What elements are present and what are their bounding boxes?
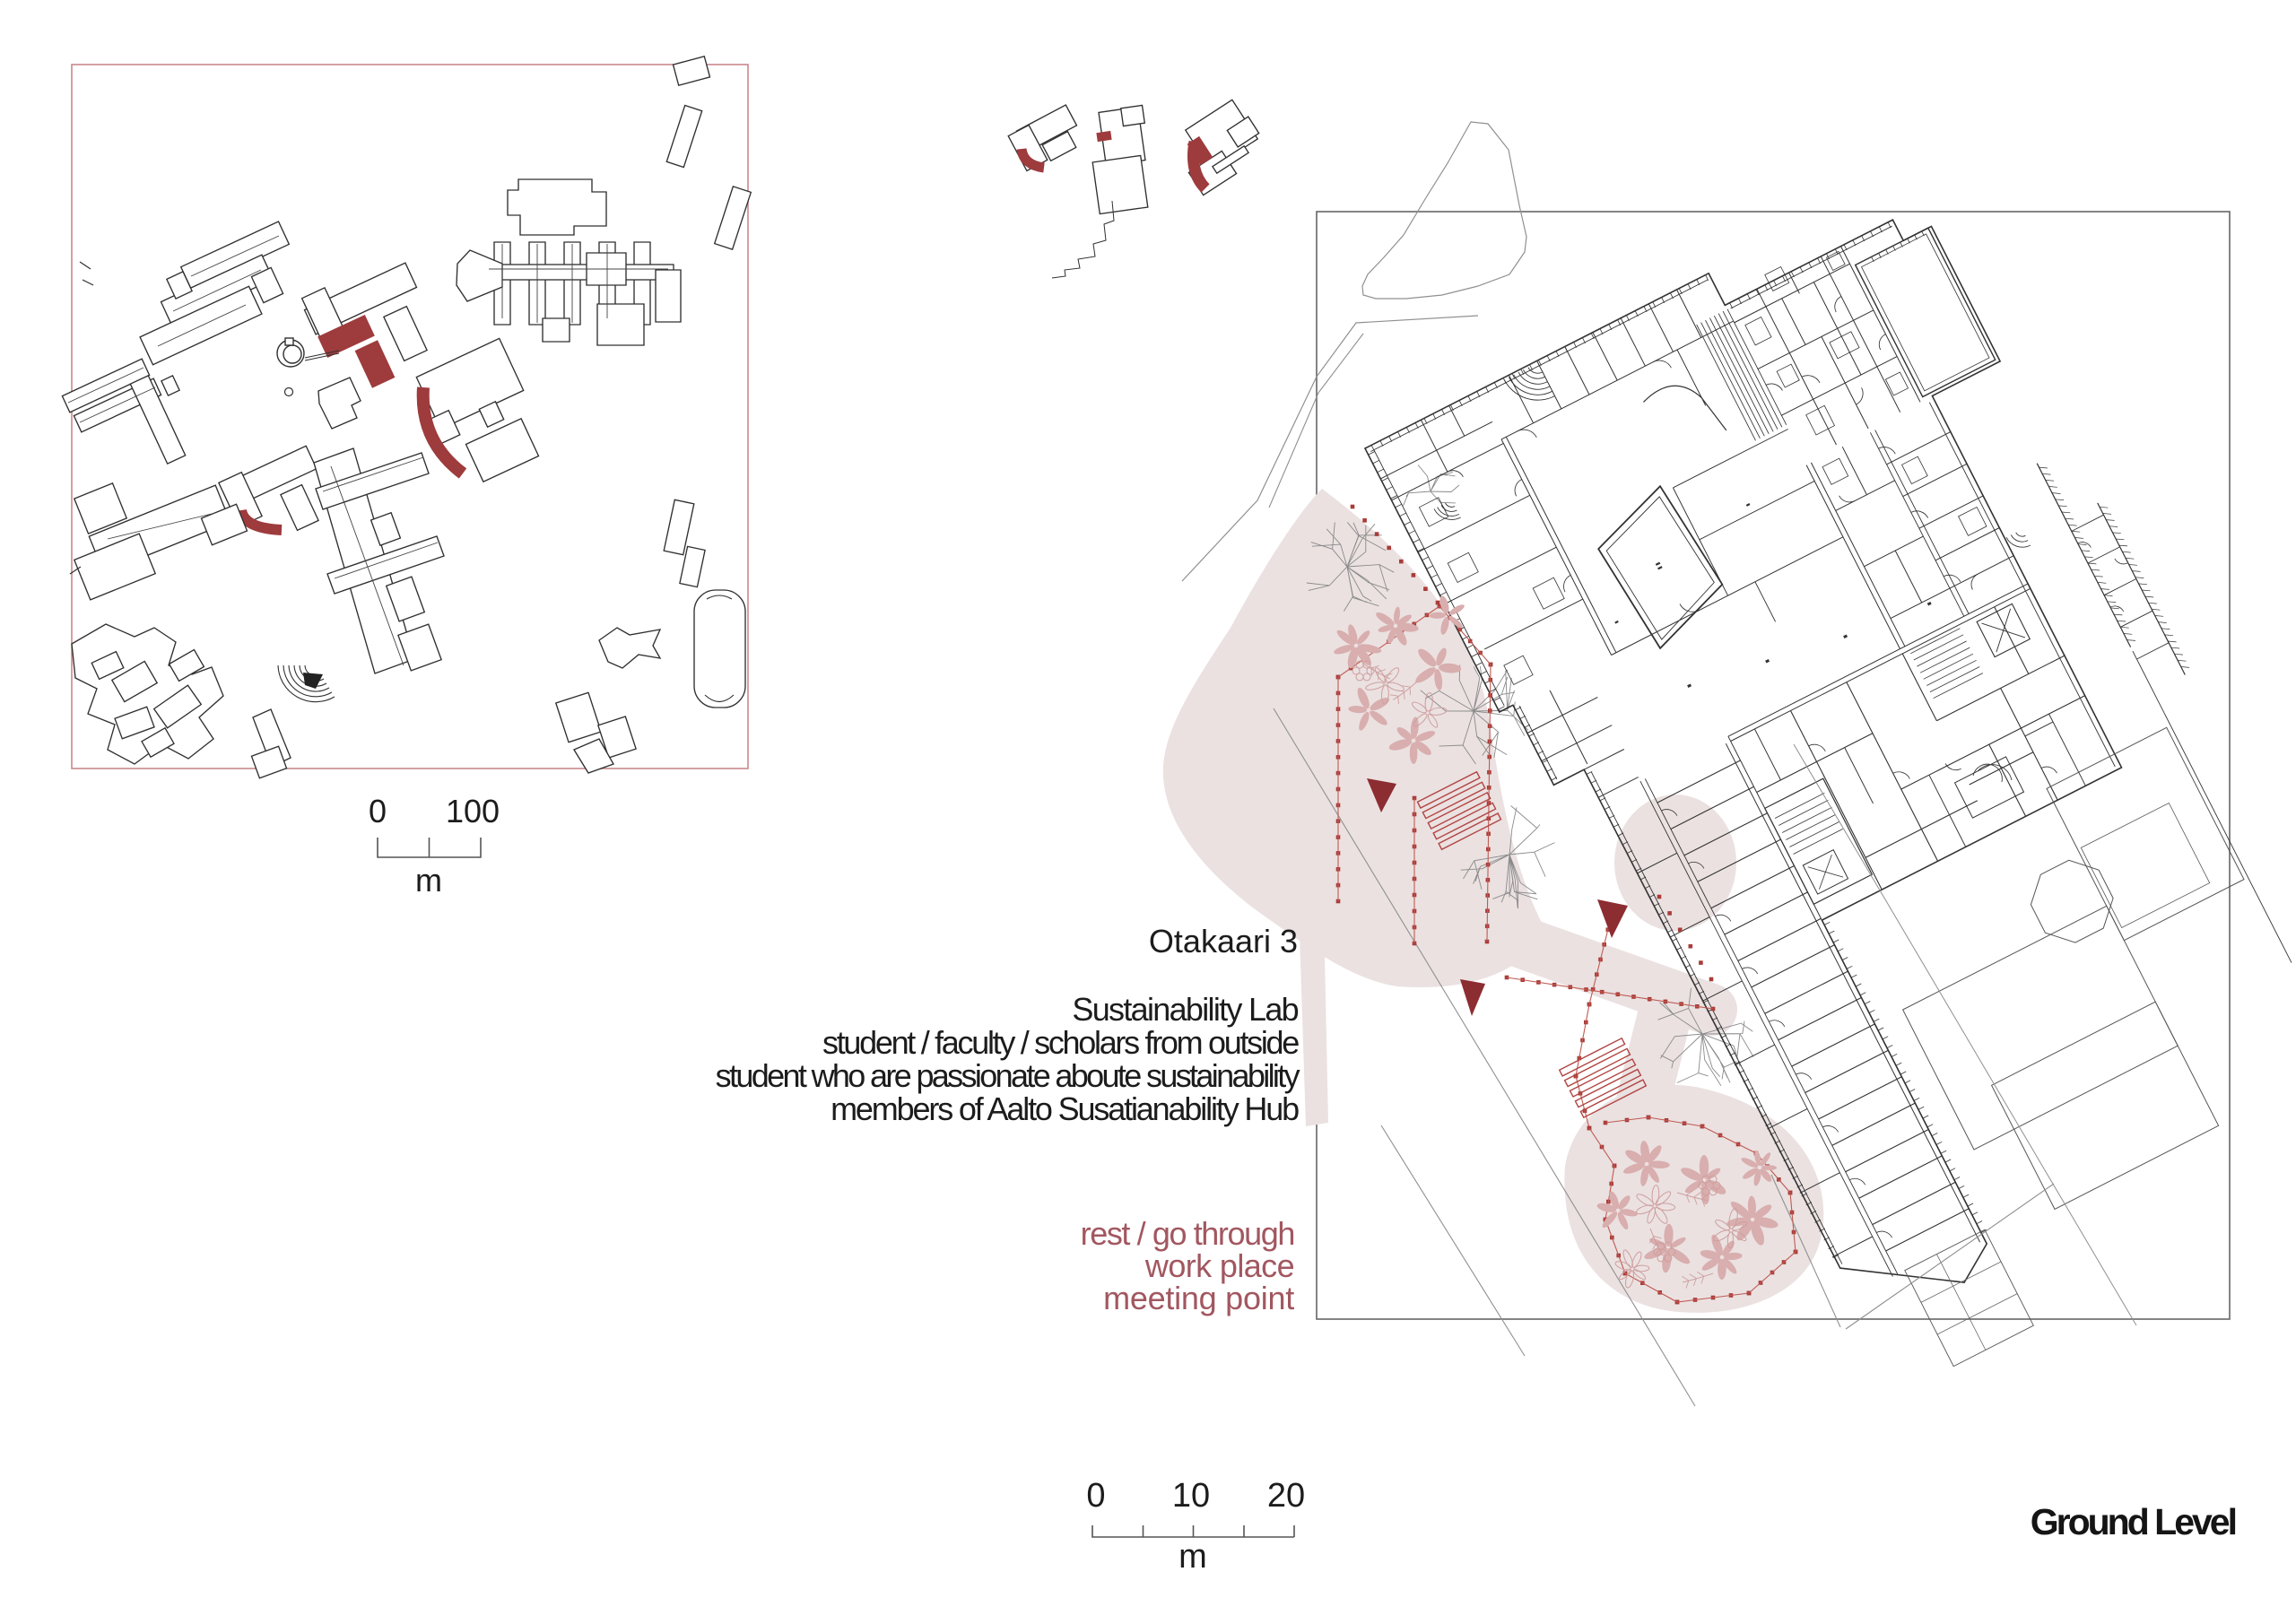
svg-text:m: m xyxy=(1178,1538,1207,1576)
svg-text:student who are passionate abo: student who are passionate aboute sustai… xyxy=(716,1057,1300,1094)
svg-text:Otakaari 3: Otakaari 3 xyxy=(1149,923,1298,960)
svg-text:0: 0 xyxy=(369,793,387,829)
svg-text:meeting point: meeting point xyxy=(1103,1280,1294,1316)
svg-text:rest / go through: rest / go through xyxy=(1081,1215,1294,1252)
svg-text:student / faculty / scholars f: student / faculty / scholars from outsid… xyxy=(822,1024,1299,1061)
svg-text:Sustainability Lab: Sustainability Lab xyxy=(1072,991,1298,1028)
svg-text:20: 20 xyxy=(1267,1477,1305,1515)
svg-text:m: m xyxy=(415,862,442,899)
svg-text:work place: work place xyxy=(1144,1247,1294,1284)
svg-text:0: 0 xyxy=(1086,1477,1105,1515)
svg-text:Ground Level: Ground Level xyxy=(2031,1501,2236,1542)
svg-text:100: 100 xyxy=(446,793,500,829)
svg-text:10: 10 xyxy=(1172,1477,1210,1515)
svg-text:members of Aalto Susatianabili: members of Aalto Susatianability Hub xyxy=(831,1090,1299,1127)
